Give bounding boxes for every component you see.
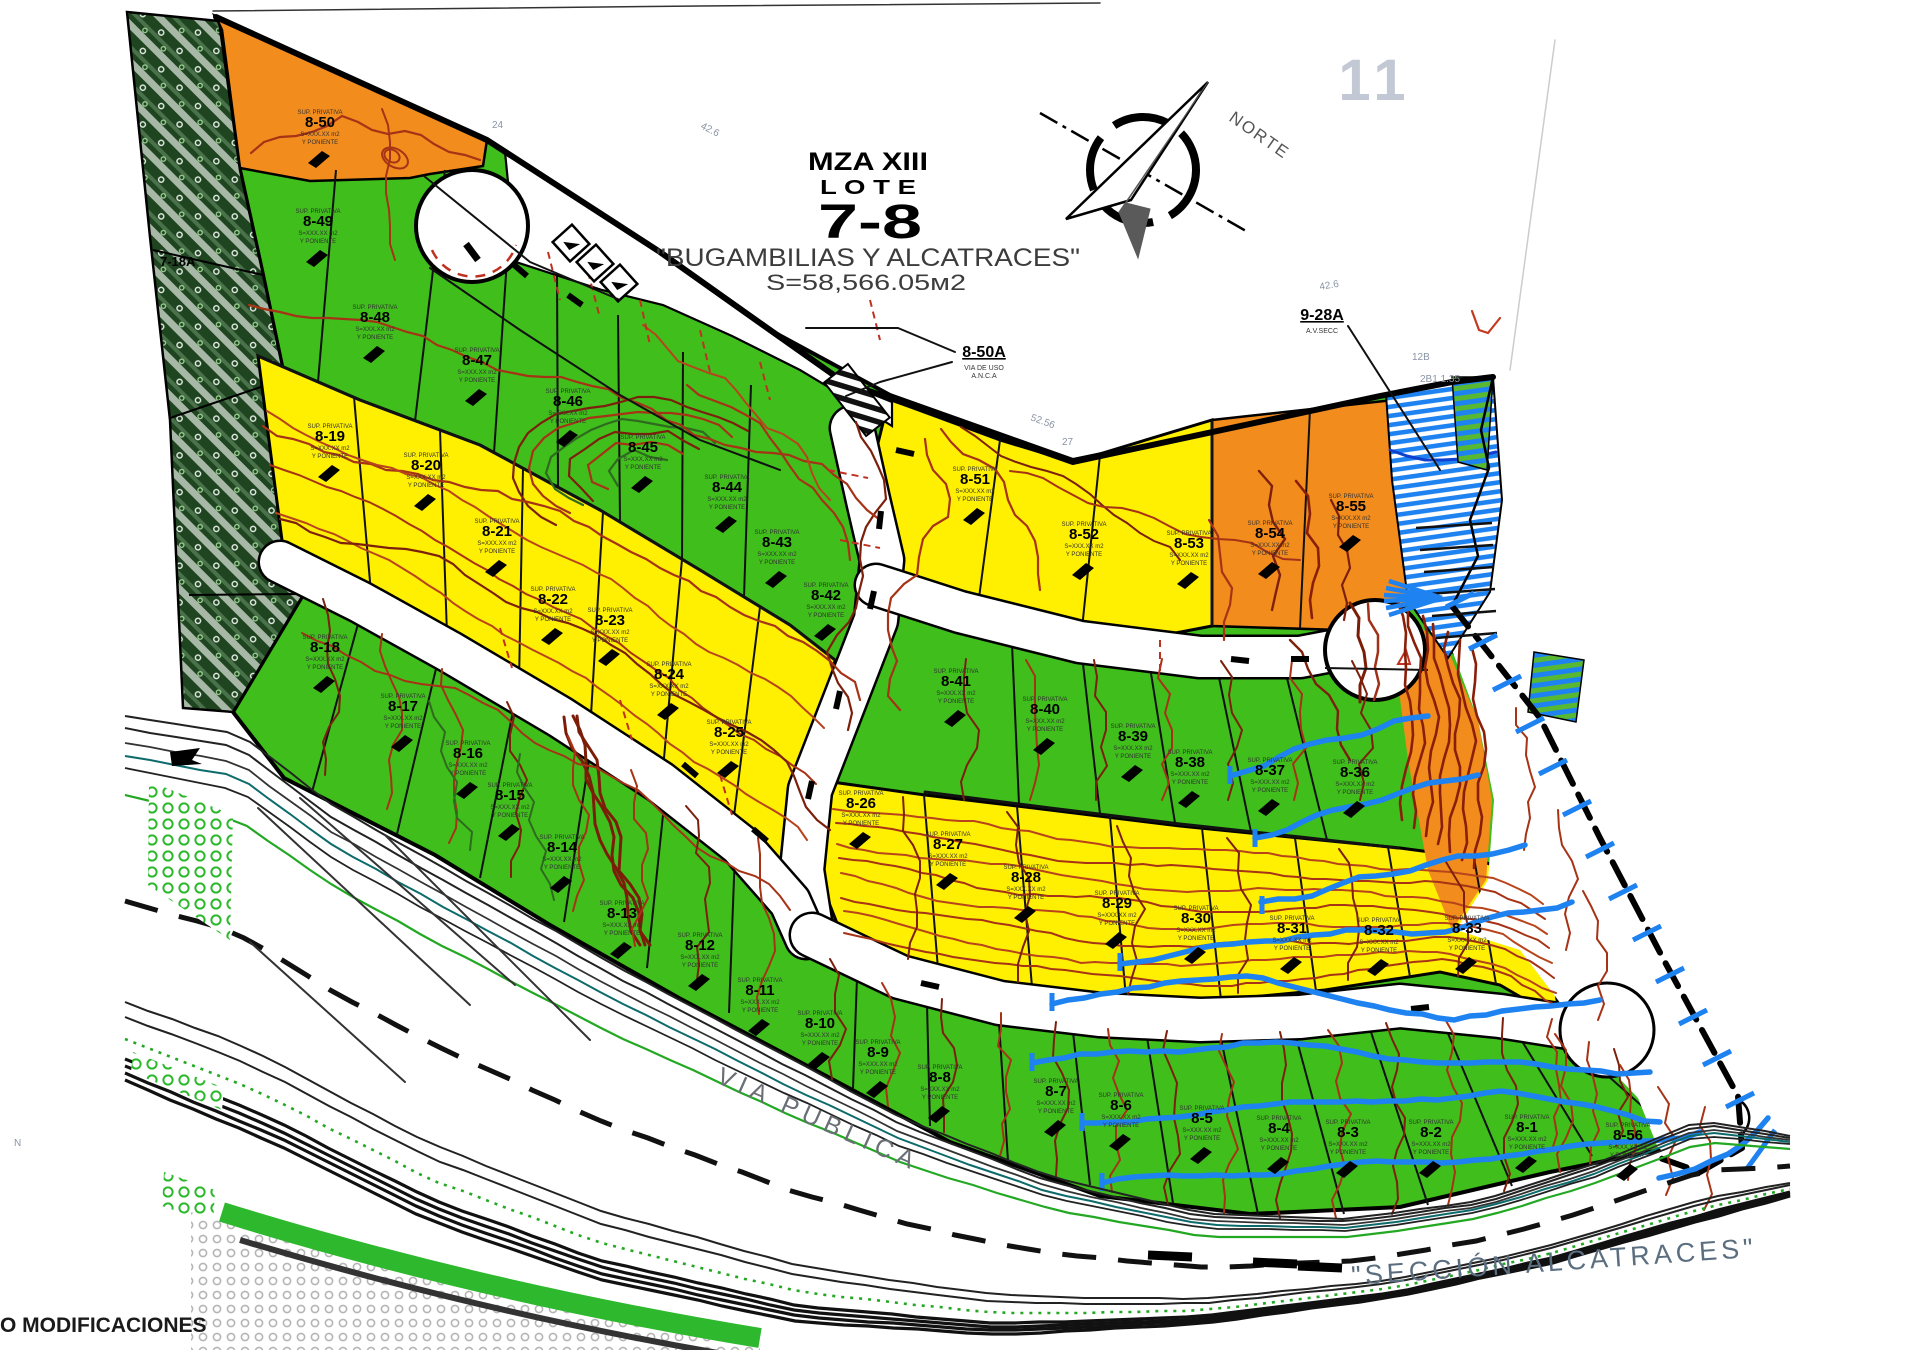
svg-text:S=58,566.05м2: S=58,566.05м2 [766,270,966,295]
svg-text:SUP. PRIVATIVA: SUP. PRIVATIVA [600,901,645,907]
svg-text:SUP. PRIVATIVA: SUP. PRIVATIVA [804,583,849,589]
svg-text:SUP. PRIVATIVA: SUP. PRIVATIVA [1034,1079,1079,1085]
svg-text:8-2: 8-2 [1420,1124,1442,1141]
svg-text:8-3: 8-3 [1337,1124,1359,1141]
svg-text:Y PONIENTE: Y PONIENTE [1361,948,1397,954]
svg-text:Y PONIENTE: Y PONIENTE [682,963,718,969]
svg-text:S=XXX.XX m2: S=XXX.XX m2 [841,813,881,819]
svg-text:SUP. PRIVATIVA: SUP. PRIVATIVA [1168,750,1213,756]
svg-text:8-1: 8-1 [1516,1119,1538,1136]
svg-text:SUP. PRIVATIVA: SUP. PRIVATIVA [1062,522,1107,528]
svg-text:8-10: 8-10 [805,1015,835,1032]
svg-text:S=XXX.XX m2: S=XXX.XX m2 [1097,913,1137,919]
svg-text:SUP. PRIVATIVA: SUP. PRIVATIVA [1357,918,1402,924]
svg-text:SUP. PRIVATIVA: SUP. PRIVATIVA [381,694,426,700]
svg-text:SUP. PRIVATIVA: SUP. PRIVATIVA [1257,1116,1302,1122]
svg-text:N: N [14,1138,21,1149]
svg-text:SUP. PRIVATIVA: SUP. PRIVATIVA [488,783,533,789]
svg-text:Y PONIENTE: Y PONIENTE [492,813,528,819]
svg-text:S=XXX.XX m2: S=XXX.XX m2 [1101,1115,1141,1121]
svg-text:8-40: 8-40 [1030,701,1060,718]
svg-text:8-56: 8-56 [1613,1127,1643,1144]
svg-text:SUP. PRIVATIVA: SUP. PRIVATIVA [446,741,491,747]
svg-text:S=XXX.XX m2: S=XXX.XX m2 [623,457,663,463]
svg-text:2B1 1.35: 2B1 1.35 [1420,374,1460,385]
svg-text:S=XXX.XX m2: S=XXX.XX m2 [649,684,689,690]
svg-text:8-50A: 8-50A [962,344,1006,361]
svg-text:S=XXX.XX m2: S=XXX.XX m2 [490,805,530,811]
svg-text:S=XXX.XX m2: S=XXX.XX m2 [1169,553,1209,559]
svg-text:SUP. PRIVATIVA: SUP. PRIVATIVA [1409,1120,1454,1126]
svg-text:S=XXX.XX m2: S=XXX.XX m2 [928,854,968,860]
svg-text:Y PONIENTE: Y PONIENTE [1413,1150,1449,1156]
svg-text:SUP. PRIVATIVA: SUP. PRIVATIVA [546,389,591,395]
svg-text:S=XXX.XX m2: S=XXX.XX m2 [1036,1101,1076,1107]
svg-text:S=XXX.XX m2: S=XXX.XX m2 [936,691,976,697]
svg-text:8-6: 8-6 [1110,1097,1132,1114]
svg-text:Y PONIENTE: Y PONIENTE [535,617,571,623]
svg-text:SUP. PRIVATIVA: SUP. PRIVATIVA [308,424,353,430]
svg-text:8-7: 8-7 [1045,1083,1067,1100]
svg-text:Y PONIENTE: Y PONIENTE [550,419,586,425]
svg-text:S=XXX.XX m2: S=XXX.XX m2 [1259,1138,1299,1144]
svg-text:Y PONIENTE: Y PONIENTE [860,1070,896,1076]
svg-text:SUP. PRIVATIVA: SUP. PRIVATIVA [1606,1123,1651,1129]
svg-text:8-54: 8-54 [1255,525,1286,542]
svg-text:SUP. PRIVATIVA: SUP. PRIVATIVA [798,1011,843,1017]
svg-text:SUP. PRIVATIVA: SUP. PRIVATIVA [755,530,800,536]
svg-text:SUP. PRIVATIVA: SUP. PRIVATIVA [1333,760,1378,766]
svg-text:Y PONIENTE: Y PONIENTE [1027,727,1063,733]
svg-text:S=XXX.XX m2: S=XXX.XX m2 [1176,928,1216,934]
svg-text:8-51: 8-51 [960,471,990,488]
svg-text:8-50: 8-50 [305,114,335,131]
svg-text:SUP. PRIVATIVA: SUP. PRIVATIVA [953,467,998,473]
svg-text:S=XXX.XX m2: S=XXX.XX m2 [680,955,720,961]
svg-text:8-43: 8-43 [762,534,792,551]
svg-text:8-29: 8-29 [1102,895,1132,912]
svg-text:S=XXX.XX m2: S=XXX.XX m2 [457,370,497,376]
svg-text:O MODIFICACIONES: O MODIFICACIONES [0,1314,207,1337]
svg-text:8-38: 8-38 [1175,754,1205,771]
svg-text:Y PONIENTE: Y PONIENTE [479,549,515,555]
svg-text:Y PONIENTE: Y PONIENTE [307,665,343,671]
svg-text:S=XXX.XX m2: S=XXX.XX m2 [955,489,995,495]
svg-text:SUP. PRIVATIVA: SUP. PRIVATIVA [475,519,520,525]
svg-text:Y PONIENTE: Y PONIENTE [1261,1146,1297,1152]
svg-text:Y PONIENTE: Y PONIENTE [544,865,580,871]
svg-text:"BUGAMBILIAS Y ALCATRACES": "BUGAMBILIAS Y ALCATRACES" [656,244,1080,272]
svg-text:Y PONIENTE: Y PONIENTE [300,239,336,245]
svg-text:Y PONIENTE: Y PONIENTE [1252,788,1288,794]
svg-text:Y PONIENTE: Y PONIENTE [651,692,687,698]
svg-text:Y PONIENTE: Y PONIENTE [408,483,444,489]
svg-text:8-23: 8-23 [595,612,625,629]
svg-text:A.V.SECC: A.V.SECC [1306,328,1338,335]
svg-text:Y PONIENTE: Y PONIENTE [385,724,421,730]
svg-text:8-16: 8-16 [453,745,483,762]
svg-text:SUP. PRIVATIVA: SUP. PRIVATIVA [353,305,398,311]
svg-text:8-49: 8-49 [303,213,333,230]
svg-text:8-27: 8-27 [933,836,963,853]
svg-text:7-18A: 7-18A [160,254,196,269]
svg-text:8-55: 8-55 [1336,498,1366,515]
svg-text:7-8: 7-8 [818,196,922,249]
svg-text:S=XXX.XX m2: S=XXX.XX m2 [1113,746,1153,752]
svg-text:SUP. PRIVATIVA: SUP. PRIVATIVA [1326,1120,1371,1126]
svg-text:SUP. PRIVATIVA: SUP. PRIVATIVA [839,791,884,797]
svg-text:SUP. PRIVATIVA: SUP. PRIVATIVA [1248,521,1293,527]
svg-text:S=XXX.XX m2: S=XXX.XX m2 [305,657,345,663]
svg-text:S=XXX.XX m2: S=XXX.XX m2 [858,1062,898,1068]
svg-text:S=XXX.XX m2: S=XXX.XX m2 [310,446,350,452]
svg-text:8-41: 8-41 [941,673,971,690]
svg-text:Y PONIENTE: Y PONIENTE [357,335,393,341]
svg-text:SUP. PRIVATIVA: SUP. PRIVATIVA [1445,916,1490,922]
svg-text:S=XXX.XX m2: S=XXX.XX m2 [383,716,423,722]
svg-text:S=XXX.XX m2: S=XXX.XX m2 [533,609,573,615]
svg-text:Y PONIENTE: Y PONIENTE [709,505,745,511]
svg-text:Y PONIENTE: Y PONIENTE [1330,1150,1366,1156]
svg-text:S=XXX.XX m2: S=XXX.XX m2 [709,742,749,748]
svg-text:S=XXX.XX m2: S=XXX.XX m2 [806,605,846,611]
svg-text:8-37: 8-37 [1255,762,1285,779]
svg-text:S=XXX.XX m2: S=XXX.XX m2 [920,1087,960,1093]
svg-text:SUP. PRIVATIVA: SUP. PRIVATIVA [588,608,633,614]
svg-text:Y PONIENTE: Y PONIENTE [1274,946,1310,952]
svg-text:8-25: 8-25 [714,724,744,741]
svg-text:SUP. PRIVATIVA: SUP. PRIVATIVA [1180,1106,1225,1112]
svg-text:SUP. PRIVATIVA: SUP. PRIVATIVA [1023,697,1068,703]
svg-text:S=XXX.XX m2: S=XXX.XX m2 [1608,1145,1648,1151]
svg-text:S=XXX.XX m2: S=XXX.XX m2 [1447,938,1487,944]
svg-text:SUP. PRIVATIVA: SUP. PRIVATIVA [918,1065,963,1071]
svg-text:Y PONIENTE: Y PONIENTE [1449,946,1485,952]
svg-text:SUP. PRIVATIVA: SUP. PRIVATIVA [738,978,783,984]
svg-text:MZA XIII: MZA XIII [808,148,928,176]
svg-text:S=XXX.XX m2: S=XXX.XX m2 [590,630,630,636]
svg-text:8-52: 8-52 [1069,526,1099,543]
svg-text:8-5: 8-5 [1191,1110,1213,1127]
svg-text:SUP. PRIVATIVA: SUP. PRIVATIVA [1270,916,1315,922]
svg-text:8-19: 8-19 [315,428,345,445]
svg-text:S=XXX.XX m2: S=XXX.XX m2 [542,857,582,863]
svg-text:Y PONIENTE: Y PONIENTE [1172,780,1208,786]
svg-text:SUP. PRIVATIVA: SUP. PRIVATIVA [404,453,449,459]
svg-text:SUP. PRIVATIVA: SUP. PRIVATIVA [1099,1093,1144,1099]
svg-text:8-39: 8-39 [1118,728,1148,745]
svg-text:8-32: 8-32 [1364,922,1394,939]
svg-text:27: 27 [1062,437,1074,448]
svg-text:SUP. PRIVATIVA: SUP. PRIVATIVA [934,669,979,675]
svg-text:8-12: 8-12 [685,937,715,954]
svg-text:SUP. PRIVATIVA: SUP. PRIVATIVA [856,1040,901,1046]
svg-text:Y PONIENTE: Y PONIENTE [604,931,640,937]
svg-text:Y PONIENTE: Y PONIENTE [1008,895,1044,901]
svg-text:S=XXX.XX m2: S=XXX.XX m2 [448,763,488,769]
svg-text:SUP. PRIVATIVA: SUP. PRIVATIVA [1111,724,1156,730]
svg-text:8-30: 8-30 [1181,910,1211,927]
svg-text:S=XXX.XX m2: S=XXX.XX m2 [602,923,642,929]
svg-text:SUP. PRIVATIVA: SUP. PRIVATIVA [540,835,585,841]
svg-text:S=XXX.XX m2: S=XXX.XX m2 [1250,780,1290,786]
svg-text:8-46: 8-46 [553,393,583,410]
svg-text:Y PONIENTE: Y PONIENTE [592,638,628,644]
svg-text:Y PONIENTE: Y PONIENTE [1178,936,1214,942]
svg-text:8-44: 8-44 [712,479,743,496]
svg-text:9-28A: 9-28A [1300,307,1344,324]
svg-text:8-21: 8-21 [482,523,512,540]
svg-text:Y PONIENTE: Y PONIENTE [1103,1123,1139,1129]
svg-text:24: 24 [492,120,504,131]
svg-text:S=XXX.XX m2: S=XXX.XX m2 [1411,1142,1451,1148]
svg-text:11: 11 [1338,48,1411,113]
svg-text:Y PONIENTE: Y PONIENTE [625,465,661,471]
svg-text:8-18: 8-18 [310,639,340,656]
svg-text:S=XXX.XX m2: S=XXX.XX m2 [1335,782,1375,788]
svg-text:8-8: 8-8 [929,1069,951,1086]
svg-text:8-20: 8-20 [411,457,441,474]
svg-text:SUP. PRIVATIVA: SUP. PRIVATIVA [1505,1115,1550,1121]
svg-text:S=XXX.XX m2: S=XXX.XX m2 [1025,719,1065,725]
svg-text:8-17: 8-17 [388,698,418,715]
svg-text:S=XXX.XX m2: S=XXX.XX m2 [800,1033,840,1039]
svg-text:8-31: 8-31 [1277,920,1307,937]
svg-text:8-15: 8-15 [495,787,525,804]
svg-text:S=XXX.XX m2: S=XXX.XX m2 [1064,544,1104,550]
svg-text:Y PONIENTE: Y PONIENTE [459,378,495,384]
svg-text:S=XXX.XX m2: S=XXX.XX m2 [1006,887,1046,893]
svg-text:SUP. PRIVATIVA: SUP. PRIVATIVA [1248,758,1293,764]
svg-text:SUP. PRIVATIVA: SUP. PRIVATIVA [455,348,500,354]
svg-text:8-24: 8-24 [654,666,685,683]
svg-text:Y PONIENTE: Y PONIENTE [312,454,348,460]
svg-text:Y PONIENTE: Y PONIENTE [1610,1153,1646,1159]
svg-text:S=XXX.XX m2: S=XXX.XX m2 [707,497,747,503]
svg-text:Y PONIENTE: Y PONIENTE [1337,790,1373,796]
svg-text:S=XXX.XX m2: S=XXX.XX m2 [355,327,395,333]
svg-text:S=XXX.XX m2: S=XXX.XX m2 [300,132,340,138]
svg-text:Y PONIENTE: Y PONIENTE [759,560,795,566]
svg-text:8-4: 8-4 [1268,1120,1290,1137]
svg-text:S=XXX.XX m2: S=XXX.XX m2 [1272,938,1312,944]
svg-text:SUP. PRIVATIVA: SUP. PRIVATIVA [303,635,348,641]
svg-text:8-22: 8-22 [538,591,568,608]
svg-text:Y PONIENTE: Y PONIENTE [802,1041,838,1047]
svg-text:8-53: 8-53 [1174,535,1204,552]
svg-text:8-11: 8-11 [745,982,774,999]
svg-text:8-14: 8-14 [547,839,578,856]
svg-text:S=XXX.XX m2: S=XXX.XX m2 [1331,516,1371,522]
svg-text:Y PONIENTE: Y PONIENTE [930,862,966,868]
svg-text:8-33: 8-33 [1452,920,1482,937]
svg-text:S=XXX.XX m2: S=XXX.XX m2 [548,411,588,417]
svg-text:SUP. PRIVATIVA: SUP. PRIVATIVA [678,933,723,939]
svg-text:SUP. PRIVATIVA: SUP. PRIVATIVA [621,435,666,441]
svg-text:Y PONIENTE: Y PONIENTE [1115,754,1151,760]
svg-text:8-47: 8-47 [462,352,492,369]
svg-text:8-13: 8-13 [607,905,637,922]
svg-text:S=XXX.XX m2: S=XXX.XX m2 [1507,1137,1547,1143]
svg-text:Y PONIENTE: Y PONIENTE [938,699,974,705]
svg-text:S=XXX.XX m2: S=XXX.XX m2 [298,231,338,237]
svg-text:Y PONIENTE: Y PONIENTE [1333,524,1369,530]
svg-text:S=XXX.XX m2: S=XXX.XX m2 [757,552,797,558]
svg-text:SUP. PRIVATIVA: SUP. PRIVATIVA [647,662,692,668]
svg-text:SUP. PRIVATIVA: SUP. PRIVATIVA [1004,865,1049,871]
svg-text:S=XXX.XX m2: S=XXX.XX m2 [1182,1128,1222,1134]
svg-text:Y PONIENTE: Y PONIENTE [1066,552,1102,558]
svg-text:8-45: 8-45 [628,439,658,456]
svg-text:S=XXX.XX m2: S=XXX.XX m2 [1170,772,1210,778]
svg-text:SUP. PRIVATIVA: SUP. PRIVATIVA [531,587,576,593]
svg-text:Y PONIENTE: Y PONIENTE [1038,1109,1074,1115]
svg-text:SUP. PRIVATIVA: SUP. PRIVATIVA [1095,891,1140,897]
svg-text:SUP. PRIVATIVA: SUP. PRIVATIVA [296,209,341,215]
svg-text:S=XXX.XX m2: S=XXX.XX m2 [477,541,517,547]
svg-text:8-48: 8-48 [360,309,390,326]
svg-text:Y PONIENTE: Y PONIENTE [1184,1136,1220,1142]
svg-text:Y PONIENTE: Y PONIENTE [957,497,993,503]
svg-text:Y PONIENTE: Y PONIENTE [302,140,338,146]
svg-text:Y PONIENTE: Y PONIENTE [843,821,879,827]
svg-text:S=XXX.XX m2: S=XXX.XX m2 [1250,543,1290,549]
svg-text:8-28: 8-28 [1011,869,1041,886]
svg-text:SUP. PRIVATIVA: SUP. PRIVATIVA [926,832,971,838]
svg-text:VIA DE USO: VIA DE USO [964,365,1004,372]
svg-text:12B: 12B [1412,352,1430,363]
svg-text:SUP. PRIVATIVA: SUP. PRIVATIVA [1167,531,1212,537]
svg-text:Y PONIENTE: Y PONIENTE [742,1008,778,1014]
svg-text:SUP. PRIVATIVA: SUP. PRIVATIVA [1174,906,1219,912]
svg-text:A.N.C.A: A.N.C.A [971,373,997,380]
svg-text:Y PONIENTE: Y PONIENTE [711,750,747,756]
svg-text:SUP. PRIVATIVA: SUP. PRIVATIVA [1329,494,1374,500]
svg-text:SUP. PRIVATIVA: SUP. PRIVATIVA [707,720,752,726]
svg-text:S=XXX.XX m2: S=XXX.XX m2 [406,475,446,481]
svg-text:Y PONIENTE: Y PONIENTE [808,613,844,619]
svg-text:Y PONIENTE: Y PONIENTE [1099,921,1135,927]
svg-text:Y PONIENTE: Y PONIENTE [1252,551,1288,557]
svg-text:SUP. PRIVATIVA: SUP. PRIVATIVA [705,475,750,481]
svg-text:Y PONIENTE: Y PONIENTE [1509,1145,1545,1151]
svg-text:S=XXX.XX m2: S=XXX.XX m2 [1328,1142,1368,1148]
svg-text:Y PONIENTE: Y PONIENTE [922,1095,958,1101]
svg-text:8-36: 8-36 [1340,764,1370,781]
svg-text:Y PONIENTE: Y PONIENTE [450,771,486,777]
svg-text:S=XXX.XX m2: S=XXX.XX m2 [740,1000,780,1006]
svg-text:SUP. PRIVATIVA: SUP. PRIVATIVA [298,110,343,116]
svg-text:Y PONIENTE: Y PONIENTE [1171,561,1207,567]
svg-text:8-26: 8-26 [846,795,876,812]
svg-text:S=XXX.XX m2: S=XXX.XX m2 [1359,940,1399,946]
svg-text:8-42: 8-42 [811,587,841,604]
svg-text:8-9: 8-9 [867,1044,889,1061]
